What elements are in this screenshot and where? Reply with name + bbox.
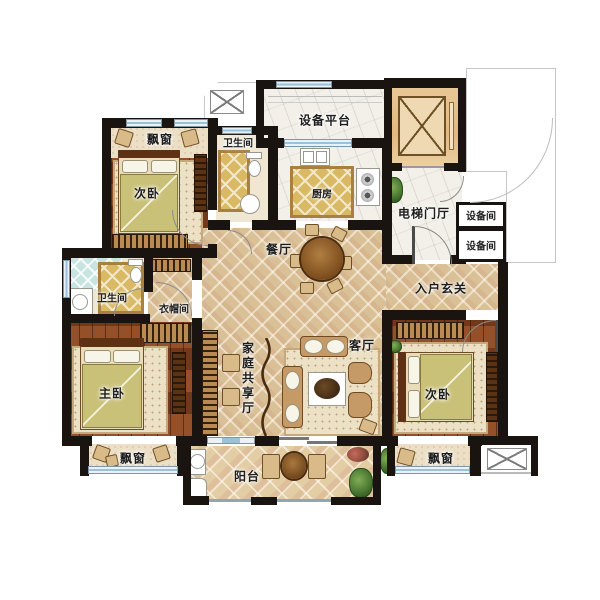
- bedroom2-headboard: [398, 352, 406, 422]
- balcony-plant: [349, 468, 373, 498]
- wall-master-suite-right-lower: [192, 318, 202, 444]
- window-bed1-a: [126, 119, 162, 127]
- dining-table: [301, 238, 343, 280]
- dining-chair-5: [300, 282, 314, 294]
- label-balcony: 阳台: [234, 468, 260, 485]
- window-bed1-b: [174, 119, 208, 127]
- wall-elevator-top: [384, 78, 466, 88]
- label-entry-foyer: 入户玄关: [415, 280, 467, 297]
- bathroom2-toilet-bowl: [130, 267, 142, 283]
- wall-balcony-right: [373, 436, 381, 504]
- wall-hall-bottom-l: [384, 255, 412, 264]
- window-bath2-left: [63, 260, 70, 298]
- dining-chair-1: [305, 224, 319, 236]
- family-hall-decor-wave: [258, 338, 274, 436]
- wall-balcony-bottom-pier3: [331, 497, 381, 505]
- slider-door-leaf-2: [307, 441, 337, 444]
- label-living-room: 客厅: [349, 337, 375, 354]
- balcony-glass-2: [277, 499, 331, 502]
- bathroom1-basin: [240, 194, 260, 214]
- label-cloakroom: 衣帽间: [159, 301, 189, 316]
- master-wardrobe: [140, 323, 191, 343]
- family-hall-bookshelf: [202, 330, 218, 436]
- living-coffee-table-tray: [314, 378, 340, 399]
- ac-platform-sill: [481, 472, 531, 474]
- bedroom2-pillow-1: [408, 356, 420, 384]
- label-bedroom-bottom-right: 次卧: [425, 386, 451, 403]
- wall-balcony-pier-2: [255, 436, 279, 446]
- bedroom2-bench: [486, 352, 498, 422]
- window-living-south: [207, 437, 255, 444]
- skylight-xbox-top-left: [210, 90, 244, 114]
- slider-door-leaf-1: [279, 437, 309, 440]
- wall-kitchen-bottom-r: [348, 220, 392, 230]
- platform-ledge-line2: [268, 102, 382, 103]
- wall-bath1-bottom-pier: [208, 220, 230, 230]
- wall-kitchen-right: [382, 138, 392, 264]
- living-armchair-1: [348, 362, 372, 384]
- bathroom1-toilet-bowl: [248, 160, 261, 177]
- living-sofa-left-cushion2: [285, 404, 300, 423]
- family-hall-chair-2: [222, 388, 240, 406]
- balcony-floor: [191, 446, 373, 500]
- master-headboard: [80, 338, 144, 347]
- wall-balcony-left: [183, 436, 191, 504]
- wall-elevator-bottom-r: [444, 163, 466, 171]
- window-bayBL: [88, 466, 178, 474]
- elevator-door-line: [402, 166, 444, 168]
- kitchen-burner-1: [361, 173, 374, 186]
- bedroom1-pillow-2: [151, 160, 177, 173]
- ac-platform-xbox: [487, 448, 527, 470]
- platform-ledge-line: [268, 96, 382, 97]
- label-family-shared-hall: 家庭共享厅: [240, 342, 257, 417]
- living-sofa-top-cushion2: [326, 339, 345, 354]
- balcony-chair-1: [262, 454, 280, 479]
- elevator-rail-slot: [449, 102, 454, 150]
- wall-bath2-cloak-divider: [144, 252, 153, 292]
- label-bathroom-master: 卫生间: [97, 290, 127, 305]
- label-equipment-room-1: 设备间: [466, 208, 496, 223]
- wall-acbox-left: [474, 436, 481, 476]
- label-master-bedroom: 主卧: [99, 385, 125, 402]
- wall-bayBR-cap-l: [387, 440, 395, 476]
- window-platform-kitchen: [284, 139, 352, 147]
- bedroom1-dresser: [194, 154, 207, 212]
- window-platform: [276, 81, 332, 88]
- wall-bath1-kitchen-bottom: [252, 220, 296, 230]
- kitchen-burner-2: [361, 189, 374, 202]
- label-bay-window-bottom-left: 飘窗: [120, 450, 146, 467]
- window-bath1: [222, 127, 252, 134]
- wall-bedroom2-left: [382, 310, 392, 440]
- window-bayBR: [395, 466, 470, 474]
- balcony-table: [282, 453, 306, 479]
- wall-acbox-top: [474, 436, 538, 445]
- cloakroom-wardrobe: [149, 259, 191, 272]
- label-equipment-platform: 设备平台: [299, 112, 351, 129]
- bedroom2-wardrobe: [396, 322, 464, 339]
- bedroom1-headboard: [118, 150, 180, 158]
- elevator-car-xbox: [398, 96, 446, 156]
- label-equipment-room-2: 设备间: [466, 238, 496, 253]
- bedroom1-blanket: [120, 174, 178, 232]
- balcony-glass-1: [209, 499, 251, 502]
- living-sofa-top-cushion1: [304, 339, 323, 354]
- wall-bedroom2-right: [498, 310, 508, 444]
- family-hall-chair-1: [222, 354, 240, 372]
- bedroom1-wardrobe: [112, 234, 188, 249]
- wall-platform-kitchen-pier-l: [256, 138, 284, 148]
- wall-bed1-left: [102, 118, 111, 258]
- wall-right-of-foyer: [498, 262, 508, 310]
- balcony-flowers: [347, 447, 369, 462]
- label-dining-room: 餐厅: [266, 241, 292, 258]
- bedroom2-pillow-2: [408, 390, 420, 418]
- kitchen-sink-bowl-2: [316, 151, 327, 163]
- label-bay-window-bottom-right: 飘窗: [428, 450, 454, 467]
- bathroom2-basin: [72, 294, 88, 310]
- label-bathroom-top: 卫生间: [223, 135, 253, 150]
- wall-acbox-right: [531, 436, 538, 476]
- kitchen-sink-bowl-1: [303, 151, 314, 163]
- living-sofa-left-cushion1: [285, 371, 300, 390]
- label-kitchen: 厨房: [312, 186, 332, 201]
- bedroom1-pillow-1: [122, 160, 148, 173]
- bathroom1-toilet-tank: [246, 152, 262, 159]
- label-bay-window-top-left: 飘窗: [147, 131, 173, 148]
- master-dresser: [172, 352, 186, 414]
- label-elevator-hall: 电梯门厅: [398, 205, 450, 222]
- wall-platform-left: [256, 80, 264, 146]
- balcony-sink-bowl: [190, 454, 205, 469]
- floor-plan-canvas: 飘窗 次卧 卫生间 设备平台 厨房 电梯门厅 设备间 设备间 餐厅 入户玄关 卫…: [0, 0, 600, 600]
- living-armchair-2: [348, 392, 372, 418]
- wall-balcony-bottom-pier2: [251, 497, 277, 505]
- wall-elevator-right: [458, 78, 466, 172]
- master-pillow-1: [84, 350, 111, 363]
- wall-master-suite-right-upper: [192, 248, 202, 280]
- wall-bedroom2-top: [386, 310, 466, 320]
- wall-bed1-bath-divider-upper: [208, 126, 217, 210]
- wall-balcony-bottom-pier1: [183, 496, 209, 505]
- master-pillow-2: [113, 350, 140, 363]
- bathroom2-toilet-tank: [128, 259, 143, 266]
- label-bedroom-top-left: 次卧: [134, 185, 160, 202]
- balcony-chair-2: [308, 454, 326, 479]
